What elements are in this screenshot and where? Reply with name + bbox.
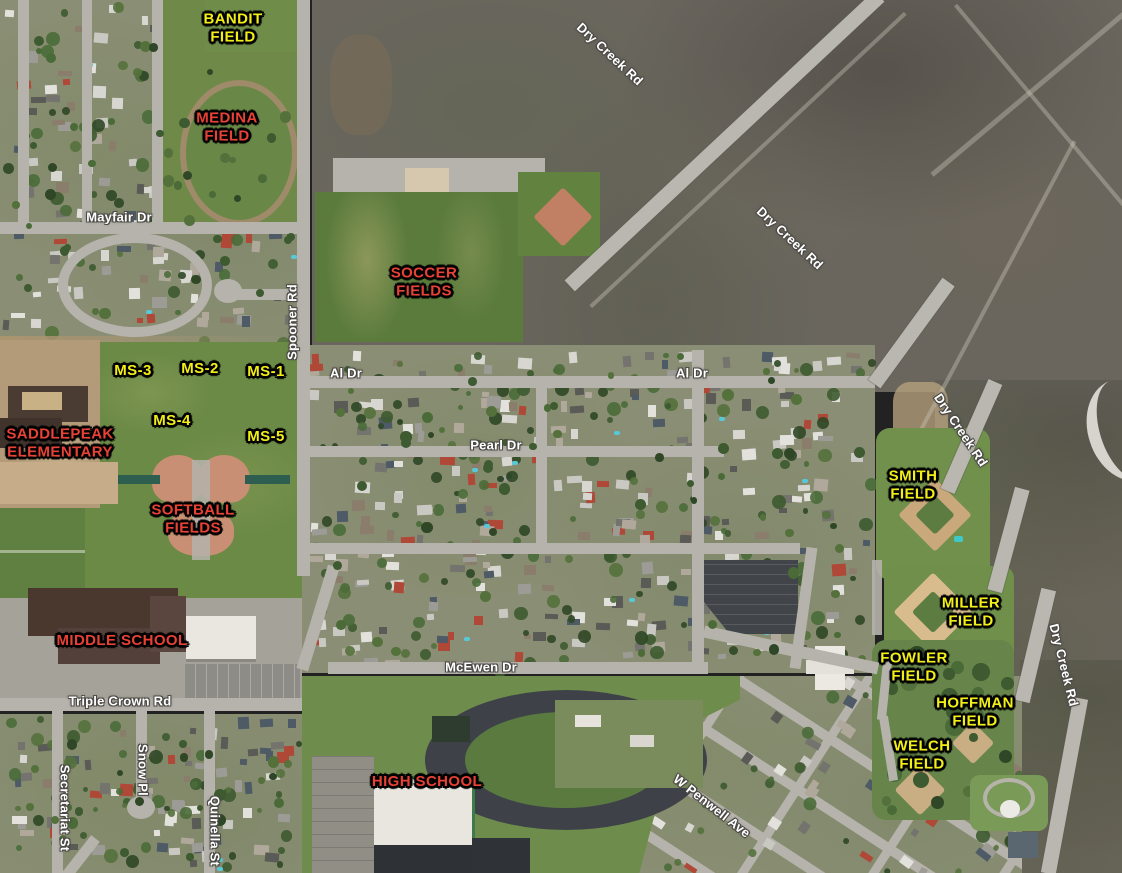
tree [179,740,187,748]
map-house [553,480,562,491]
map-house [277,813,290,822]
map-house [575,387,585,395]
map-house [812,361,822,372]
building [630,735,654,747]
road-label-pearl-dr: Pearl Dr [470,438,521,453]
tree [336,408,345,417]
pool [802,479,808,483]
map-house [723,356,730,367]
tree [635,499,646,510]
road-label-quinella-st: Quinella St [208,796,223,866]
map-house [169,848,180,855]
map-house [662,360,668,370]
tree [514,607,528,621]
map-house [648,405,656,417]
road-label-al-dr-2: Al Dr [676,366,708,381]
tree [554,364,565,375]
map-house [20,755,28,763]
map-house [63,78,71,85]
dugout [245,475,290,484]
pool [464,637,470,641]
map-house [417,431,424,443]
map-house [484,505,492,511]
tree [547,595,560,608]
tree [621,401,628,408]
map-house [632,395,639,401]
tree [351,402,362,413]
tree [772,448,783,459]
map-house [742,399,750,411]
tree [359,457,367,465]
map-house [797,821,811,835]
tree [213,235,221,243]
tree [454,364,462,372]
map-house [580,502,592,508]
map-house [190,860,197,867]
map-house [621,519,636,529]
pond [954,536,963,542]
map-house [437,636,449,643]
road-label-mcewen-dr: McEwen Dr [445,660,517,675]
tree [88,160,96,168]
road-label-triple-crown-rd: Triple Crown Rd [69,694,172,709]
parking-lot [185,664,300,698]
tree [969,733,978,742]
map-house [310,364,323,372]
map-house [416,504,431,515]
map-house [31,319,41,328]
tree [663,862,674,873]
tree [553,430,561,438]
tree [229,157,236,164]
map-house [802,438,811,449]
map-house [12,816,27,824]
tree [15,806,21,812]
map-house [440,456,455,465]
tree [663,353,669,359]
tree [113,2,124,13]
map-house [818,436,833,442]
tree [267,133,277,143]
map-house [45,85,58,95]
map-house [379,627,386,635]
map-house [911,828,920,837]
tree [466,569,475,578]
map-house [615,480,628,490]
map-house [216,767,228,777]
tree [184,215,195,226]
tree [793,426,806,439]
tree [141,842,152,853]
map-house [28,158,37,166]
tree [565,555,573,563]
field-label-ms-3: MS-3 [114,362,151,380]
street [302,543,800,554]
construction-dirt [0,462,118,504]
map-house [642,561,654,574]
tree [413,456,423,466]
tree [26,803,34,811]
map-house [450,565,465,573]
tree [45,189,56,200]
map-house [85,760,92,770]
tree [831,590,840,599]
map-house [567,475,582,483]
map-house [235,780,242,792]
map-house [502,414,517,423]
tree [562,605,572,615]
field-label-miller-field: MILLERFIELD [942,595,1000,632]
map-house [154,829,160,836]
map-house [408,397,420,407]
cul-de-sac [214,279,242,303]
map-house [844,548,852,560]
tree [258,777,264,783]
tree [186,853,193,860]
tree [570,516,576,522]
tree [61,9,68,16]
tree [46,32,60,46]
map-house [674,595,688,606]
pool [512,461,518,465]
map-house [641,578,651,589]
al-dr [302,376,875,388]
tree [695,826,705,836]
map-house [312,528,327,535]
tree [400,431,411,442]
tree [519,525,530,536]
map-house [33,292,41,298]
tree [466,391,471,396]
tree [164,148,174,158]
tree [804,461,810,467]
tree [476,518,484,526]
map-house [247,749,258,757]
map-house [394,582,404,593]
high-school-building [472,838,530,873]
map-house [220,737,228,749]
map-house [779,508,787,513]
field-label-smith-field: SMITHFIELD [889,468,938,505]
map-house [730,466,737,472]
tree [710,516,720,526]
tree [859,518,872,531]
tree [729,646,738,655]
tree [954,867,963,873]
map-house [242,316,250,327]
tree [322,516,333,527]
map-house [93,32,107,43]
tree [385,582,392,589]
tree [769,644,779,654]
map-house [818,761,831,774]
map-house [653,419,665,428]
map-house [685,823,695,833]
map-house [220,317,235,324]
tree [64,244,71,251]
tree [60,205,72,217]
field-label-saddlepeak-elementary: SADDLEPEAKELEMENTARY [6,426,113,463]
tree [358,422,367,431]
tree [458,405,463,410]
map-house [51,171,62,181]
tree [636,591,643,598]
tree [99,308,111,320]
map-house [190,728,197,735]
tree [811,611,825,625]
map-house [100,783,110,794]
map-house [360,525,374,534]
tree [392,512,398,518]
map-house [448,632,454,640]
map-house [20,830,34,837]
dirt-patch [330,35,392,135]
tree [120,848,129,857]
field-label-medina-field: MEDINAFIELD [196,110,258,147]
tree [441,578,448,585]
map-house [781,401,789,407]
tree [34,36,44,46]
road-label-spooner-rd: Spooner Rd [285,284,300,360]
middle-school-building-white [186,616,256,662]
field-line [0,550,85,553]
tree [6,718,16,728]
map-house [47,277,58,283]
tree [226,787,232,793]
map-house [144,187,152,193]
tree [381,411,392,422]
saddlepeak-roof [22,392,62,410]
map-house [142,16,148,25]
map-house [202,312,209,320]
map-house [743,487,755,495]
tree [780,460,789,469]
map-house [251,241,260,252]
tree [718,443,729,454]
map-house [474,616,483,624]
street [82,0,92,226]
map-house [319,637,327,647]
map-house [578,532,591,540]
tree [883,867,892,873]
map-house [18,742,24,749]
tree [12,201,20,209]
field-access-road [872,560,882,635]
tree [93,807,98,812]
road-label-snow-pl: Snow Pl [136,744,151,796]
tree [268,756,279,767]
map-house [50,255,60,264]
round-building [1000,800,1020,818]
tree [156,130,164,138]
tree [80,832,87,839]
map-house [780,435,794,446]
tree [256,289,264,297]
map-house [542,584,555,591]
tree [791,394,802,405]
map-house [568,351,577,362]
tree [656,501,668,513]
map-house [243,808,252,817]
tree [16,274,23,281]
field-label-softball-fields: SOFTBALLFIELDS [151,502,234,539]
map-house [31,97,46,103]
map-house [3,320,10,330]
map-house [375,502,385,510]
tree [1001,677,1014,690]
field-label-ms-4: MS-4 [153,412,190,430]
tree [33,815,44,826]
field-label-fowler-field: FOWLERFIELD [880,650,947,687]
map-house [545,614,558,619]
tree [794,368,799,373]
street [18,0,29,226]
map-house [596,623,610,630]
map-house [46,95,61,103]
street [692,350,704,672]
map-house [732,430,744,439]
tree [197,805,203,811]
tree [827,388,840,401]
tree [75,807,84,816]
map-house [627,620,638,627]
map-house [452,466,460,476]
map-house [14,233,25,240]
tree [24,284,32,292]
field-label-bandit-field: BANDITFIELD [203,11,262,48]
tree [824,688,843,707]
tree [431,472,442,483]
tree [126,855,139,868]
tree [16,845,22,851]
map-house [99,178,110,187]
tree [882,796,892,806]
tree [817,417,829,429]
tree [636,510,644,518]
tree [149,43,158,52]
map-house [804,419,812,429]
map-house [585,392,592,398]
map-house [386,561,399,569]
pool [719,417,725,421]
road-label-secretariat-st: Secretariat St [58,765,73,852]
map-house [4,10,13,17]
tree [49,109,56,116]
tree [433,504,444,515]
tree [480,591,491,602]
tree [258,174,267,183]
map-house [483,562,490,568]
map-house [167,755,175,764]
tree [269,773,276,780]
map-house [120,730,126,737]
tree [149,750,163,764]
tree [276,791,282,797]
tree [421,522,432,533]
tree [391,647,401,657]
map-house [453,423,463,433]
map-house [502,457,512,467]
map-house [561,401,568,412]
tree [191,781,198,788]
tree [234,195,241,202]
tree [205,750,214,759]
tree [209,191,216,198]
tree [468,377,477,386]
tree [114,198,124,208]
field-label-hoffman-field: HOFFMANFIELD [936,695,1014,732]
map-house [583,493,593,501]
map-house [848,567,856,574]
tree [608,372,614,378]
pool [217,867,223,871]
tree [479,480,488,489]
map-house [259,718,273,727]
road-label-al-dr: Al Dr [330,366,362,381]
map-house [518,357,532,369]
tree [229,852,236,859]
field-label-ms-5: MS-5 [247,428,284,446]
building [1008,832,1038,858]
tree [220,256,230,266]
field-label-ms-1: MS-1 [247,363,284,381]
tree [499,483,510,494]
map-house [309,556,323,563]
map-house [705,393,715,404]
tree [284,236,292,244]
tree [179,118,189,128]
map-house [721,519,728,525]
tree [191,275,201,285]
map-house [157,843,168,853]
tree [278,847,285,854]
tree [822,511,831,520]
map-house [361,631,372,641]
tree [489,528,497,536]
map-house [863,540,870,546]
map-house [92,86,105,98]
tree [497,476,504,483]
tree [67,739,77,749]
map-house [545,556,551,563]
map-house [755,532,769,540]
pool [484,524,490,528]
building [575,715,601,727]
map-house [428,602,438,612]
satellite-map[interactable]: BANDITFIELDMEDINAFIELDSOCCERFIELDSMS-3MS… [0,0,1122,873]
map-house [192,817,201,829]
map-house [467,473,475,485]
map-house [827,357,842,366]
mcewen-dr [328,662,708,674]
medina-field-oval [180,80,298,226]
map-house [394,461,403,467]
map-house [484,571,495,578]
tree [725,530,731,536]
map-house [596,481,608,487]
map-house [518,583,531,594]
map-house [58,71,72,76]
tree [174,181,183,190]
high-school-building [360,845,482,873]
tree [763,368,769,374]
tree [635,631,648,644]
tree [788,567,800,579]
field-label-welch-field: WELCHFIELD [894,738,951,775]
tree [550,402,558,410]
tree [655,453,664,462]
map-house [288,719,296,728]
